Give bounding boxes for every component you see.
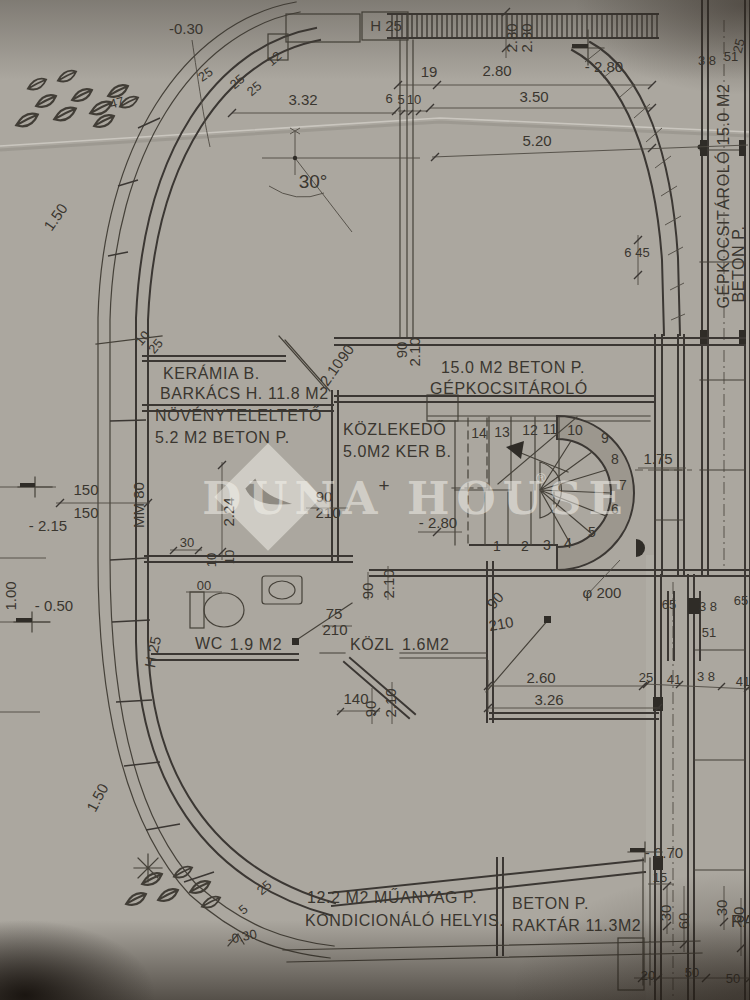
room-label: RAKTÁR 11.3M2 [512,916,641,934]
stair-number: 14 [471,425,487,441]
watermark-text: DUNA HOUSE [202,472,630,525]
dimension-label: 15 [653,870,667,885]
dimension-label: 3.32 [288,91,317,108]
stair-number: 11 [543,421,558,437]
room-label: 12.2 M2 MŰANYAG P. [307,888,477,906]
room-label: KÖZL [350,636,394,653]
dimension-label: 1.00 [2,581,19,610]
dimension-label: 10 [204,553,219,567]
dimension-label: 90 [362,701,379,718]
dimension-label: 60 [675,913,692,930]
room-label: KÖZLEKEDŐ [343,420,446,438]
dimension-label: 50 [726,971,740,986]
dimension-label: 3 8 [699,599,717,614]
stair-number: 4 [564,535,572,551]
dimension-label: 30 [657,905,674,922]
registered-mark: ® [535,471,548,486]
scanned-floor-plan: -0.30H 252.802.30192.80- 2.803.3265103.5… [0,0,750,1000]
dimension-label: φ 200 [583,584,622,601]
dimension-label: 2.10 [380,569,397,598]
stair-number: 12 [522,422,538,438]
dimension-label: 65 [662,597,676,612]
dimension-label: 2.30 [518,23,535,52]
room-label: NÖVÉNYTELELTETŐ [155,406,322,424]
dimension-label: MM 80 [130,482,147,528]
dimension-label: 10 [407,92,421,107]
dimension-label: 3 8 [697,669,715,684]
room-label: GÉPKOCSITÁROLÓ [430,379,588,397]
dimension-label: 20 [641,968,655,983]
dimension-label: 30° [299,171,328,192]
dimension-label: 150 [73,481,98,498]
room-label: BETON P. [730,225,747,302]
dimension-label: 6 45 [624,245,649,260]
dimension-label: 19 [421,63,438,80]
dimension-label: 10 [222,550,237,564]
dimension-label: 3.26 [534,691,563,708]
dimension-label: 2.10 [406,337,423,366]
dimension-label: -0.30 [169,20,203,37]
dimension-label: 150 [73,504,98,521]
room-label: BARKÁCS H. 11.8 M2 [160,384,329,402]
room-label: WC [195,635,223,652]
dimension-label: 30 [713,900,730,917]
stair-number: 10 [567,422,583,438]
stair-number: 13 [494,424,510,440]
floor-plan-canvas: -0.30H 252.802.30192.80- 2.803.3265103.5… [0,0,750,1000]
dimension-label: 25 [639,670,653,685]
dimension-label: 5 [397,92,404,107]
dimension-label: 2.60 [526,669,555,686]
dimension-label: 00 [197,578,211,593]
stair-number: 9 [601,430,609,446]
dimension-label: H 25 [370,17,402,34]
dimension-label: - 2.80 [585,58,623,75]
room-label: 1.9 M2 [230,636,283,653]
dimension-label: 1.75 [643,450,672,467]
room-label: RA [731,913,750,930]
room-label: KONDICIONÁLÓ HELYIS. [305,911,504,929]
dimension-label: 2.80 [482,62,511,79]
dimension-label: - 2.15 [29,517,67,534]
dimension-label: 51 [702,625,716,640]
stair-number: 1 [493,538,501,554]
dimension-label: 90 [359,583,376,600]
dimension-label: 65 [734,593,748,608]
stair-number: 2 [521,538,529,554]
dimension-label: 50 [685,965,699,980]
dimension-label: 5.20 [522,132,551,149]
stair-number: 8 [611,451,619,467]
dimension-label: 75 [326,605,343,622]
room-label: 15.0 M2 BETON P. [441,359,585,376]
dimension-label: 30 [180,535,194,550]
room-label: 5.0M2 KER B. [343,443,452,460]
dimension-label: - 0.50 [35,597,73,614]
room-label: 5.2 M2 BETON P. [155,429,290,446]
dimension-label: 3.50 [519,88,548,105]
dimension-label: 41 [736,674,750,689]
room-label: KERÁMIA B. [163,364,260,382]
stair-number: 3 [543,537,551,553]
dimension-label: 210 [322,621,347,638]
room-label: 1.6M2 [402,636,449,653]
dimension-label: 41 [667,672,681,687]
plant-star [134,854,162,882]
dimension-label: - 0.70 [645,844,683,861]
dimension-label: 2.10 [382,688,399,717]
dimension-label: 6 [385,91,392,106]
dimension-label: 3 8 [698,53,716,68]
room-label: BETON P. [512,895,589,912]
stair-number: 5 [588,524,596,540]
